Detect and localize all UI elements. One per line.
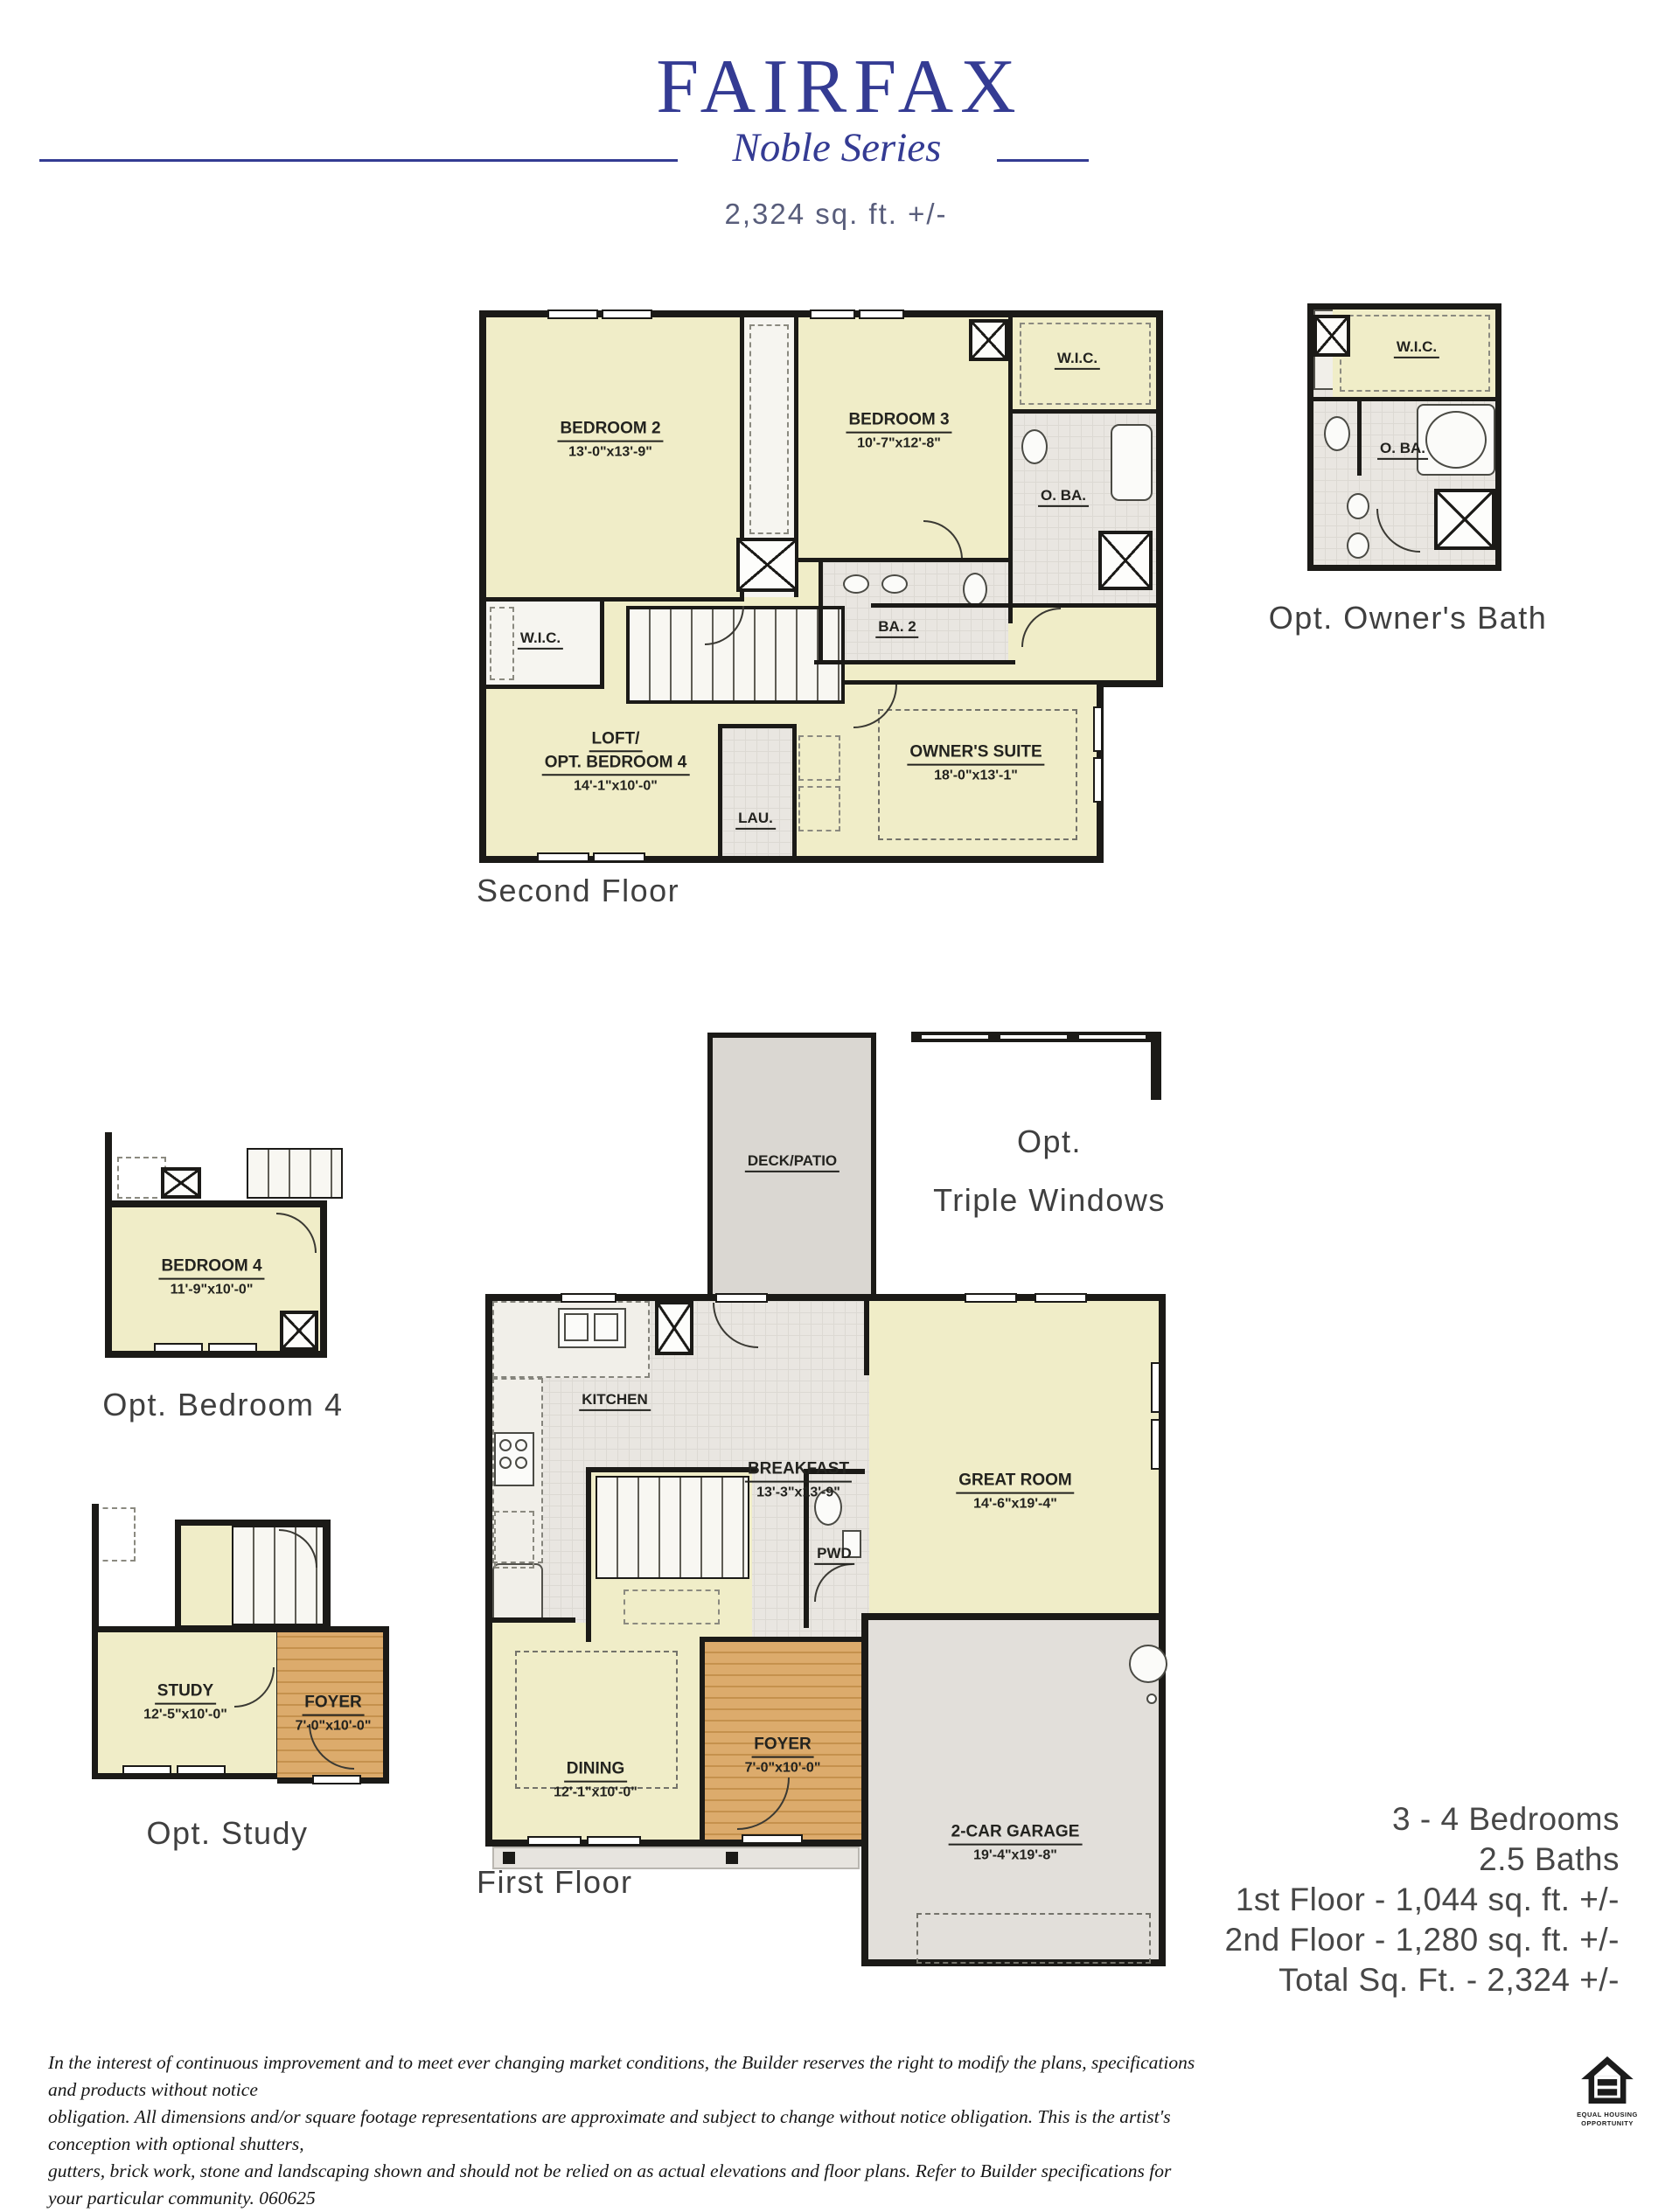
room-label-laundry: LAU. <box>735 809 776 830</box>
opt-triple-windows-label: Opt. Triple Windows <box>883 1112 1216 1229</box>
floor-drain <box>1146 1694 1157 1704</box>
room-label-ba2: BA. 2 <box>875 617 918 638</box>
door-opening <box>715 1293 768 1303</box>
shower <box>1434 489 1495 550</box>
room-label-oba: O. BA. <box>1377 439 1428 460</box>
wall <box>794 558 1013 562</box>
stat-first-floor-sqft: 1st Floor - 1,044 sq. ft. +/- <box>1224 1880 1620 1920</box>
closet-outline <box>94 1507 136 1562</box>
caption-opt-study: Opt. Study <box>83 1815 372 1852</box>
room-label-breakfast: BREAKFAST 13'-3"x13'-9" <box>745 1459 852 1502</box>
sink <box>881 574 908 594</box>
window <box>177 1765 226 1775</box>
wall <box>718 724 797 728</box>
deck-patio: DECK/PATIO <box>707 1033 876 1301</box>
window <box>1035 1293 1087 1303</box>
second-floor-plan: BEDROOM 2 13'-0"x13'-9" BEDROOM 3 10'-7"… <box>479 310 1163 863</box>
header-rule-left <box>39 159 678 162</box>
room-label-bedroom2: BEDROOM 2 13'-0"x13'-9" <box>557 419 663 462</box>
wall <box>492 1617 575 1623</box>
staircase <box>596 1476 749 1579</box>
disclaimer-text: In the interest of continuous improvemen… <box>48 2049 1202 2212</box>
wall <box>92 1504 99 1631</box>
window <box>1151 1419 1160 1470</box>
room-label-oba: O. BA. <box>1038 486 1089 507</box>
room-label-wic: W.I.C. <box>1394 337 1439 358</box>
stat-second-floor-sqft: 2nd Floor - 1,280 sq. ft. +/- <box>1224 1920 1620 1960</box>
window <box>1093 757 1103 803</box>
front-porch <box>492 1847 860 1869</box>
linen-closet <box>969 319 1008 361</box>
room-laundry <box>722 728 792 856</box>
window <box>859 310 904 319</box>
room-great-room <box>869 1301 1159 1616</box>
equal-housing-house-icon <box>1581 2056 1634 2104</box>
room-label-pwd: PWD <box>814 1544 854 1565</box>
room-label-bedroom4: BEDROOM 4 11'-9"x10'-0" <box>158 1256 264 1299</box>
tub-basin <box>1425 411 1487 469</box>
window <box>561 1293 617 1303</box>
plan-stats: 3 - 4 Bedrooms 2.5 Baths 1st Floor - 1,0… <box>1224 1799 1620 2000</box>
staircase <box>247 1148 343 1199</box>
room-label-study: STUDY 12'-5"x10'-0" <box>143 1681 227 1724</box>
garage-door-outline <box>916 1913 1151 1964</box>
window <box>527 1836 582 1846</box>
wall <box>486 597 744 602</box>
porch-post <box>726 1852 738 1864</box>
door-swing <box>923 520 963 560</box>
closet-shelf-outline <box>749 324 789 534</box>
closet-shelf-outline <box>490 607 514 680</box>
sink-basin <box>594 1313 618 1341</box>
equal-housing-logo: EQUAL HOUSING OPPORTUNITY <box>1567 2056 1648 2128</box>
wall <box>864 1301 869 1375</box>
wall <box>600 602 604 689</box>
wall <box>819 562 823 664</box>
disclaimer-line: gutters, brick work, stone and landscapi… <box>48 2158 1202 2212</box>
wall <box>486 685 604 689</box>
room-label-wic-left: W.I.C. <box>518 629 563 650</box>
caption-opt-owners-bath: Opt. Owner's Bath <box>1224 600 1592 636</box>
door-swing <box>1021 608 1061 647</box>
window <box>208 1343 257 1353</box>
bathtub <box>1111 424 1153 501</box>
wall <box>871 603 1156 608</box>
bedroom4-room: BEDROOM 4 11'-9"x10'-0" <box>105 1200 327 1358</box>
toilet <box>963 573 987 606</box>
window <box>537 852 589 862</box>
equal-housing-line2: OPPORTUNITY <box>1567 2119 1648 2128</box>
series-subtitle: Noble Series <box>0 128 1674 169</box>
window <box>999 1033 1069 1040</box>
wall <box>586 1467 591 1642</box>
opt-label-line2: Triple Windows <box>883 1171 1216 1229</box>
stat-bedrooms: 3 - 4 Bedrooms <box>1224 1799 1620 1840</box>
exterior-notch <box>1097 680 1163 863</box>
wall <box>1013 409 1156 414</box>
dryer-outline <box>798 786 840 831</box>
room-label-great-room: GREAT ROOM 14'-6"x19'-4" <box>956 1471 1074 1513</box>
toilet <box>1021 429 1048 464</box>
wall <box>792 724 797 856</box>
room-label-deck: DECK/PATIO <box>745 1151 839 1172</box>
room-label-bedroom3: BEDROOM 3 10'-7"x12'-8" <box>846 410 951 453</box>
caption-first-floor: First Floor <box>477 1864 633 1901</box>
stat-baths: 2.5 Baths <box>1224 1840 1620 1880</box>
equal-housing-text: EQUAL HOUSING OPPORTUNITY <box>1567 2111 1648 2128</box>
caption-opt-bedroom4: Opt. Bedroom 4 <box>52 1387 394 1423</box>
opt-triple-window-wall-return <box>1151 1032 1161 1100</box>
opt-bedroom4-plan: BEDROOM 4 11'-9"x10'-0" <box>105 1132 359 1364</box>
wall <box>700 1637 705 1840</box>
disclaimer-line: obligation. All dimensions and/or square… <box>48 2104 1202 2158</box>
wall <box>277 1626 389 1632</box>
opt-owners-bath-plan: W.I.C. O. BA. <box>1307 303 1501 571</box>
wall <box>700 1637 867 1642</box>
room-label-loft: LOFT/ OPT. BEDROOM 4 14'-1"x10'-0" <box>542 728 690 795</box>
room-label-owners-suite: OWNER'S SUITE 18'-0"x13'-1" <box>907 742 1044 785</box>
window <box>602 310 652 319</box>
plan-title: FAIRFAX <box>0 49 1679 126</box>
closet-shelf-outline <box>117 1157 166 1199</box>
wall <box>1008 317 1013 623</box>
linen-closet <box>1313 315 1350 357</box>
disclaimer-line: In the interest of continuous improvemen… <box>48 2049 1202 2104</box>
room-label-dining: DINING 12'-1"x10'-0" <box>554 1759 637 1802</box>
door-swing <box>234 1667 275 1708</box>
wall <box>383 1626 389 1784</box>
room-label-garage: 2-CAR GARAGE 19'-4"x19'-8" <box>949 1822 1083 1865</box>
burner <box>515 1439 527 1451</box>
window <box>965 1293 1017 1303</box>
wall <box>1357 401 1362 476</box>
sink <box>843 574 869 594</box>
front-door <box>312 1775 361 1784</box>
window <box>1093 706 1103 752</box>
window <box>547 310 598 319</box>
window <box>920 1033 990 1040</box>
stair-room <box>175 1520 331 1631</box>
wall <box>845 680 1097 685</box>
door-swing <box>276 1213 317 1253</box>
opt-study-plan: STUDY 12'-5"x10'-0" FOYER 7'-0"x10'-0" <box>92 1504 400 1784</box>
equal-housing-line1: EQUAL HOUSING <box>1567 2111 1648 2119</box>
room-label-foyer: FOYER 7'-0"x10'-0" <box>745 1735 821 1777</box>
first-floor-plan: 2-CAR GARAGE 19'-4"x19'-8" KITCHEN BREAK… <box>485 1294 1166 1847</box>
burner <box>515 1457 527 1469</box>
staircase <box>232 1526 324 1625</box>
window <box>1077 1033 1147 1040</box>
window <box>1151 1362 1160 1413</box>
burner <box>499 1439 512 1451</box>
wall <box>105 1132 112 1200</box>
opt-triple-window-wall <box>911 1032 1161 1042</box>
door-swing <box>713 1303 758 1348</box>
window <box>810 310 855 319</box>
sink <box>1347 532 1369 559</box>
window <box>593 852 645 862</box>
wall <box>1313 397 1495 401</box>
sink-basin <box>564 1313 589 1341</box>
washer-outline <box>798 735 840 781</box>
total-sqft-text: 2,324 sq. ft. +/- <box>0 198 1672 231</box>
window <box>154 1343 203 1353</box>
study-room: STUDY 12'-5"x10'-0" <box>92 1626 282 1779</box>
refrigerator-outline <box>494 1511 534 1569</box>
stair-overhead-outline <box>624 1589 720 1624</box>
front-door <box>742 1834 803 1844</box>
wall <box>814 660 1015 664</box>
closet <box>280 1311 318 1351</box>
window <box>587 1836 641 1846</box>
header-rule-right <box>997 159 1089 162</box>
sink <box>1347 493 1369 519</box>
window <box>122 1765 171 1775</box>
wall <box>718 724 722 856</box>
linen-closet <box>736 538 798 592</box>
caption-second-floor: Second Floor <box>477 873 679 909</box>
pantry <box>655 1301 693 1355</box>
water-heater <box>1129 1645 1167 1683</box>
room-label-kitchen: KITCHEN <box>579 1390 651 1411</box>
toilet <box>1324 416 1350 451</box>
burner <box>499 1457 512 1469</box>
door-swing <box>1376 509 1420 553</box>
porch-post <box>503 1852 515 1864</box>
shower <box>1098 531 1153 590</box>
linen-closet <box>161 1167 201 1199</box>
opt-label-line1: Opt. <box>883 1112 1216 1171</box>
room-label-foyer: FOYER 7'-0"x10'-0" <box>296 1693 372 1736</box>
room-garage: 2-CAR GARAGE 19'-4"x19'-8" <box>861 1613 1166 1966</box>
room-label-wic: W.I.C. <box>1055 349 1100 370</box>
door-swing <box>814 1563 853 1602</box>
stat-total-sqft: Total Sq. Ft. - 2,324 +/- <box>1224 1960 1620 2000</box>
wall <box>586 1467 757 1472</box>
